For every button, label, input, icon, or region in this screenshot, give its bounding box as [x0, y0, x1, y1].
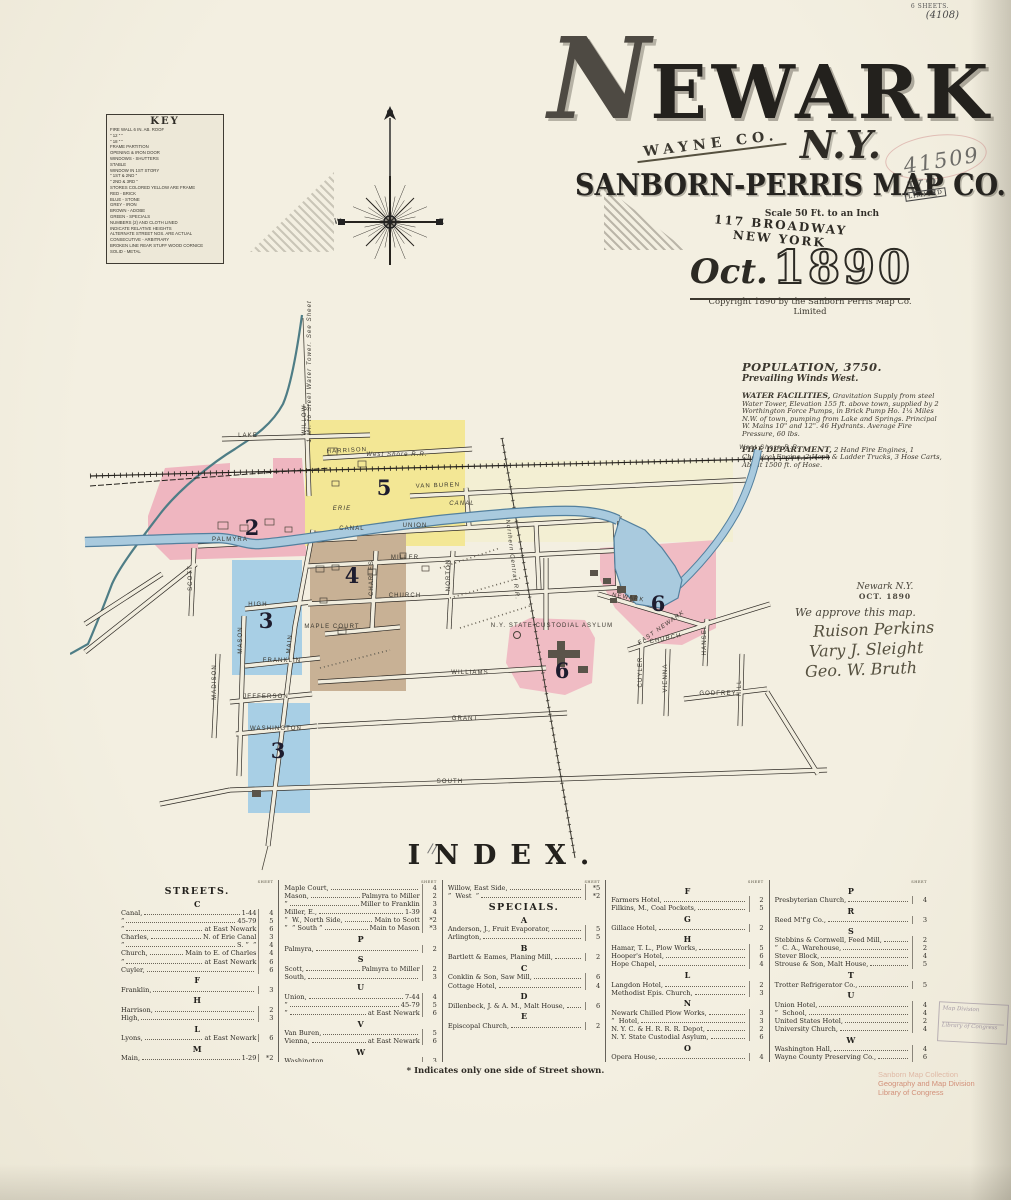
- index-letter: G: [611, 914, 763, 924]
- index-letter: R: [775, 906, 927, 916]
- index-row: High,3: [121, 1014, 273, 1022]
- index-row: United States Hotel,2: [775, 1017, 927, 1025]
- sheet-caption: SHEET: [121, 880, 273, 884]
- index-row: Washington,3: [284, 1057, 436, 1062]
- date-year: 1890: [773, 240, 913, 294]
- index-column-specials: SHEETWillow, East Side,*5” West ”*2SPECI…: [442, 880, 605, 1062]
- index-row: Hamar, T. L., Plow Works,5: [611, 944, 763, 952]
- compass-west-label: W: [334, 218, 342, 226]
- map-label: SCOTT: [188, 565, 194, 591]
- approval-date: OCT. 1890: [795, 592, 975, 601]
- index-row: ”at East Newark6: [284, 1009, 436, 1017]
- map-label: CANAL: [339, 526, 365, 532]
- compass-east-label: E: [439, 218, 444, 226]
- index-row: Church,Main to E. of Charles4: [121, 949, 273, 957]
- index-row: Scott,Palmyra to Miller2: [284, 965, 436, 973]
- index-row: Episcopal Church,2: [448, 1022, 600, 1030]
- compass-rose: W E: [330, 100, 450, 265]
- district-number: 4: [345, 563, 360, 588]
- index-letter: P: [775, 886, 927, 896]
- index-row: South,3: [284, 973, 436, 981]
- index-letter: W: [284, 1047, 436, 1057]
- index-row: ” School,4: [775, 1009, 927, 1017]
- map-label: WILLIAMS: [451, 670, 488, 676]
- index-letter: F: [611, 886, 763, 896]
- index-letter: P: [284, 934, 436, 944]
- map-label: West Shore R.R.: [366, 452, 427, 458]
- index-column-streets-2: SHEETMaple Court,4Mason,Palmyra to Mille…: [278, 880, 441, 1062]
- index-row: Filkins, M., Coal Pockets,5: [611, 904, 763, 912]
- index-letter: L: [611, 970, 763, 980]
- map-label: N.Y. STATE CUSTODIAL ASYLUM: [491, 623, 613, 629]
- map-label: CHARLES: [369, 560, 375, 596]
- index-letter: U: [284, 982, 436, 992]
- index-letter: L: [121, 1024, 273, 1034]
- index-row: Mason,Palmyra to Miller2: [284, 892, 436, 900]
- index-row: Franklin,3: [121, 986, 273, 994]
- index-row: ”Miller to Franklin3: [284, 900, 436, 908]
- index-row: ”S. ” ”4: [121, 941, 273, 949]
- map-label: GODFREY: [699, 691, 736, 697]
- index-row: Canal,1-444: [121, 909, 273, 917]
- index-row: ” C. A., Warehouse,2: [775, 944, 927, 952]
- map-label: MADISON: [212, 664, 218, 700]
- index-row: Vienna,at East Newark6: [284, 1037, 436, 1045]
- key-rows: FIRE WALL 6 IN. AB. ROOF" 12 " "" 18 " "…: [110, 127, 220, 255]
- map-label: FRANKLIN: [263, 658, 301, 664]
- index-letter: T: [775, 970, 927, 980]
- district-number: 6: [651, 591, 666, 616]
- index-row: Trotter Refrigerator Co.,5: [775, 981, 927, 989]
- index-letter: A: [448, 915, 600, 925]
- index-letter: D: [448, 991, 600, 1001]
- approval-note: Newark N.Y. OCT. 1890 We approve this ma…: [795, 582, 975, 679]
- index-row: Farmers Hotel,2: [611, 896, 763, 904]
- map-label: 1 Mi. to Steel Water Tower. See Sheet No…: [307, 298, 313, 442]
- page-title: NEWARK: [548, 14, 948, 145]
- index-letter: F: [121, 975, 273, 985]
- index-row: Harrison,2: [121, 1006, 273, 1014]
- index-row: Stebbins & Cornwell, Feed Mill,2: [775, 936, 927, 944]
- index-row: Strouse & Son, Malt House,5: [775, 960, 927, 968]
- index-row: Maple Court,4: [284, 884, 436, 892]
- index-row: ”45-795: [121, 917, 273, 925]
- index-row: Newark Chilled Plow Works,3: [611, 1009, 763, 1017]
- index-row: Stever Block,4: [775, 952, 927, 960]
- index-row: ”at East Newark6: [121, 925, 273, 933]
- index-row: Washington Hall,4: [775, 1045, 927, 1053]
- publisher-name: SANBORN-PERRIS MAP CO.: [575, 168, 925, 203]
- map-label: CHURCH: [389, 593, 422, 599]
- index-row: Willow, East Side,*5: [448, 884, 600, 892]
- index-row: Gillace Hotel,2: [611, 924, 763, 932]
- map-label: LAKE: [238, 433, 258, 439]
- index-row: Langdon Hotel,2: [611, 981, 763, 989]
- index-letter: V: [284, 1019, 436, 1029]
- index-letter: O: [611, 1043, 763, 1053]
- sheet-caption: SHEET: [611, 880, 763, 884]
- sheet-caption: SHEET: [775, 880, 927, 884]
- index-row: University Church,4: [775, 1025, 927, 1033]
- index-letter: E: [448, 1011, 600, 1021]
- index-letter: N: [611, 998, 763, 1008]
- district-number: 3: [271, 738, 286, 763]
- state-label: N.Y.: [800, 122, 881, 167]
- map-label: PALMYRA: [212, 537, 248, 543]
- index-row: ” ” South ”Main to Mason*3: [284, 924, 436, 932]
- map-label: ERIE: [333, 506, 351, 512]
- district-number: 6: [555, 658, 570, 683]
- map-label: HANSEL: [702, 625, 708, 656]
- map-label: UNION: [403, 523, 428, 529]
- willow-road-extension: [303, 318, 306, 404]
- map-label: JEFFERSON: [243, 694, 289, 700]
- index-row: Cottage Hotel,4: [448, 982, 600, 990]
- map-label: GRANT: [452, 716, 479, 722]
- index-row: Van Buren,5: [284, 1029, 436, 1037]
- index-row: ”at East Newark6: [121, 958, 273, 966]
- index-row: Anderson, J., Fruit Evaporator,5: [448, 925, 600, 933]
- title-initial: N: [548, 14, 650, 145]
- map-label: HILL: [737, 679, 743, 696]
- index-row: Reed M'f'g Co.,3: [775, 916, 927, 924]
- index-footnote: * Indicates only one side of Street show…: [0, 1066, 1011, 1076]
- index-row: Lyons,at East Newark6: [121, 1034, 273, 1042]
- index-row: Welcher, E., Grist Mill,2: [775, 1061, 927, 1062]
- index-row: Hooper's Hotel,6: [611, 952, 763, 960]
- district-number: 5: [377, 475, 392, 500]
- index-row: ”45-795: [284, 1001, 436, 1009]
- publication-date: Oct. 1890: [690, 240, 910, 300]
- north-arrow-icon: [384, 106, 396, 120]
- index-column-streets: SHEETSTREETS.CCanal,1-444”45-795”at East…: [116, 880, 278, 1062]
- index-row: ” Hotel,3: [611, 1017, 763, 1025]
- index-head: STREETS.: [121, 886, 273, 897]
- index-letter: U: [775, 990, 927, 1000]
- key-entry: SOLID - METAL: [110, 249, 220, 255]
- index-row: Opera House,4: [611, 1053, 763, 1061]
- sheets-count-note: 6 SHEETS.: [911, 3, 949, 10]
- index-letter: B: [448, 943, 600, 953]
- index-letter: W: [775, 1035, 927, 1045]
- map-layers: LAKEHARRISONWILLOWVAN BURENWest Shore R.…: [70, 298, 830, 870]
- index-row: Presbyterian Church,4: [775, 896, 927, 904]
- map-label: VIENNA: [663, 664, 669, 693]
- ornament-triangle: [250, 172, 334, 252]
- town-map: LAKEHARRISONWILLOWVAN BURENWest Shore R.…: [70, 298, 830, 873]
- map-label: WASHINGTON: [250, 726, 302, 732]
- index-head: SPECIALS.: [448, 902, 600, 913]
- index-letter: S: [284, 954, 436, 964]
- district-number: 2: [245, 515, 260, 540]
- index-row: Charles,N. of Erie Canal3: [121, 933, 273, 941]
- index-column-specials-2: SHEETFFarmers Hotel,2Filkins, M., Coal P…: [605, 880, 768, 1062]
- index-column-specials-3: SHEETPPresbyterian Church,4RReed M'f'g C…: [769, 880, 932, 1062]
- key-title: KEY: [110, 117, 220, 127]
- index-row: Main,1-29*2: [121, 1054, 273, 1062]
- district-number: 3: [259, 608, 274, 633]
- map-label: SOUTH: [437, 779, 464, 785]
- index-row: Palmyra,2: [284, 945, 436, 953]
- index-row: Hope Chapel,4: [611, 960, 763, 968]
- map-label: NORTON: [446, 559, 452, 591]
- index-letter: S: [775, 926, 927, 936]
- index-letter: C: [448, 963, 600, 973]
- map-label: West Shore R.R.: [739, 445, 800, 451]
- index-row: N. Y. C. & H. R. R. R. Depot,2: [611, 1025, 763, 1033]
- library-of-congress-stamp: Sanborn Map Collection Geography and Map…: [878, 1070, 1011, 1097]
- index-row: ” West ”*2: [448, 892, 600, 900]
- map-label: MILLER: [391, 555, 419, 561]
- index-row: Bartlett & Eames, Planing Mill,2: [448, 953, 600, 961]
- index-row: Dillenbeck, J. & A. M., Malt House,6: [448, 1002, 600, 1010]
- library-box-stamp: Map Division Library of Congress: [937, 1001, 1009, 1045]
- date-month: Oct.: [690, 252, 768, 292]
- index-letter: M: [121, 1044, 273, 1054]
- index-letter: H: [611, 934, 763, 944]
- index-letter: H: [121, 995, 273, 1005]
- index-row: Union,7-444: [284, 993, 436, 1001]
- map-label: CANAL: [449, 501, 475, 507]
- map-sheet-page: 6 SHEETS. (4108) 41509 V2 NEWARK WAYNE C…: [0, 0, 1011, 1200]
- index-title: INDEX.: [0, 840, 1011, 871]
- index-row: Wayne County Preserving Co.,6: [775, 1053, 927, 1061]
- index-row: Union Hotel,4: [775, 1001, 927, 1009]
- map-label: CUYLER: [638, 657, 644, 688]
- map-label: MAPLE COURT: [304, 624, 359, 630]
- district-5-extension: [465, 460, 733, 542]
- index-row: Miller, E.,1-394: [284, 908, 436, 916]
- index-row: ” W., North Side,Main to Scott*2: [284, 916, 436, 924]
- index-letter: C: [121, 899, 273, 909]
- index-row: Arlington,5: [448, 933, 600, 941]
- index-row: Conklin & Son, Saw Mill,6: [448, 973, 600, 981]
- index-table: SHEETSTREETS.CCanal,1-444”45-795”at East…: [116, 880, 932, 1062]
- map-label: MASON: [238, 626, 244, 654]
- index-row: N. Y. State Custodial Asylum,6: [611, 1033, 763, 1041]
- index-row: Methodist Epis. Church,3: [611, 989, 763, 997]
- map-key: KEY FIRE WALL 6 IN. AB. ROOF" 12 " "" 18…: [106, 114, 224, 264]
- index-row: Cuyler,6: [121, 966, 273, 974]
- approval-place: Newark N.Y.: [795, 582, 975, 592]
